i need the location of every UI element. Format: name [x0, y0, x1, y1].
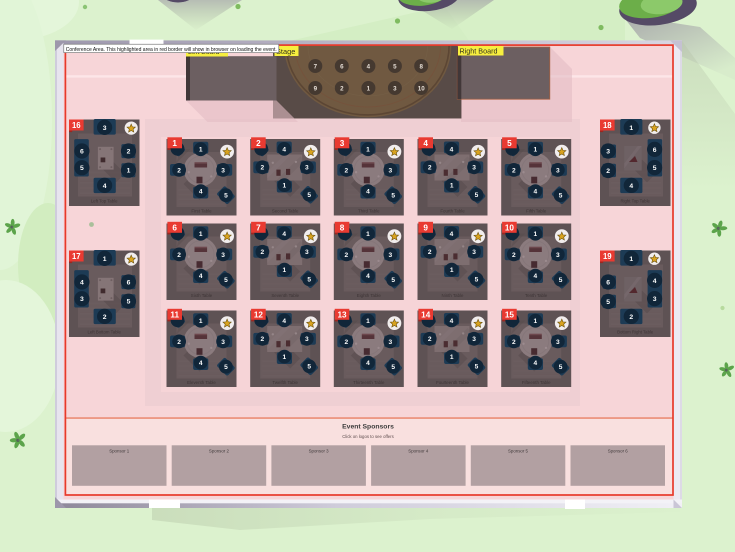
- svg-text:13: 13: [337, 310, 347, 319]
- svg-text:2: 2: [127, 149, 131, 156]
- svg-text:5: 5: [475, 192, 479, 199]
- svg-text:5: 5: [653, 165, 657, 172]
- svg-text:3: 3: [653, 296, 657, 303]
- svg-text:19: 19: [603, 252, 612, 261]
- svg-text:4: 4: [80, 280, 84, 287]
- svg-text:1: 1: [534, 318, 538, 325]
- svg-text:6: 6: [80, 149, 84, 156]
- svg-text:3: 3: [556, 339, 560, 346]
- svg-text:1: 1: [199, 147, 203, 154]
- svg-text:8: 8: [419, 63, 423, 70]
- svg-text:Conference Area. This highligh: Conference Area. This highlighted area i…: [66, 47, 277, 53]
- svg-text:Right Top Table: Right Top Table: [620, 198, 650, 203]
- svg-text:4: 4: [103, 183, 107, 190]
- svg-text:2: 2: [512, 339, 516, 346]
- svg-text:4: 4: [367, 63, 371, 70]
- svg-text:2: 2: [345, 339, 349, 346]
- svg-text:1: 1: [283, 354, 287, 361]
- svg-text:4: 4: [366, 273, 370, 280]
- svg-text:5: 5: [80, 165, 84, 172]
- svg-text:9: 9: [314, 85, 318, 92]
- svg-text:4: 4: [199, 273, 203, 280]
- svg-text:10: 10: [505, 223, 515, 232]
- svg-text:1: 1: [199, 318, 203, 325]
- svg-text:2: 2: [103, 314, 107, 321]
- svg-text:1: 1: [534, 231, 538, 238]
- svg-text:2: 2: [261, 165, 265, 172]
- svg-text:Fourteenth Table: Fourteenth Table: [436, 380, 469, 385]
- svg-text:1: 1: [366, 147, 370, 154]
- svg-text:3: 3: [393, 85, 397, 92]
- svg-text:3: 3: [305, 249, 309, 256]
- svg-text:3: 3: [221, 167, 225, 174]
- svg-text:16: 16: [72, 121, 81, 130]
- svg-text:Eighth Table: Eighth Table: [357, 293, 382, 298]
- svg-text:5: 5: [391, 193, 395, 200]
- svg-text:14: 14: [421, 310, 431, 319]
- svg-text:5: 5: [307, 364, 311, 371]
- svg-text:5: 5: [475, 277, 479, 284]
- svg-text:1: 1: [629, 125, 633, 132]
- svg-text:Fifteenth Table: Fifteenth Table: [522, 380, 551, 385]
- svg-text:2: 2: [345, 252, 349, 259]
- svg-text:4: 4: [534, 189, 538, 196]
- svg-text:5: 5: [606, 299, 610, 306]
- svg-text:Right Board: Right Board: [460, 46, 498, 55]
- svg-text:Sponsor 3: Sponsor 3: [309, 448, 330, 453]
- svg-text:2: 2: [340, 85, 344, 92]
- svg-text:11: 11: [170, 310, 179, 319]
- svg-text:6: 6: [606, 280, 610, 287]
- svg-text:1: 1: [199, 231, 203, 238]
- svg-text:17: 17: [72, 252, 81, 261]
- svg-text:5: 5: [224, 277, 228, 284]
- svg-text:2: 2: [428, 165, 432, 172]
- svg-text:1: 1: [366, 318, 370, 325]
- svg-text:5: 5: [391, 364, 395, 371]
- svg-text:2: 2: [428, 336, 432, 343]
- svg-text:Ninth Table: Ninth Table: [442, 293, 464, 298]
- svg-text:2: 2: [256, 139, 261, 148]
- svg-text:2: 2: [177, 339, 181, 346]
- svg-text:2: 2: [261, 336, 265, 343]
- svg-text:5: 5: [559, 364, 563, 371]
- svg-text:Sponsor 5: Sponsor 5: [508, 448, 529, 453]
- svg-text:Click on logos to see offers: Click on logos to see offers: [342, 434, 394, 439]
- svg-text:Twelfth Table: Twelfth Table: [272, 380, 298, 385]
- svg-text:2: 2: [345, 167, 349, 174]
- svg-text:4: 4: [629, 183, 633, 190]
- svg-text:2: 2: [177, 167, 181, 174]
- svg-text:15: 15: [505, 310, 515, 319]
- svg-text:4: 4: [282, 318, 286, 325]
- svg-text:3: 3: [556, 167, 560, 174]
- svg-text:4: 4: [450, 231, 454, 238]
- svg-text:5: 5: [224, 193, 228, 200]
- svg-text:Sponsor 2: Sponsor 2: [209, 448, 230, 453]
- svg-text:5: 5: [559, 193, 563, 200]
- svg-text:2: 2: [512, 252, 516, 259]
- svg-text:2: 2: [261, 249, 265, 256]
- svg-text:3: 3: [103, 125, 107, 132]
- svg-text:Left Bottom Table: Left Bottom Table: [88, 329, 122, 334]
- svg-text:Second Table: Second Table: [272, 209, 299, 214]
- svg-text:2: 2: [512, 167, 516, 174]
- svg-text:Fifth Table: Fifth Table: [526, 209, 547, 214]
- svg-text:3: 3: [221, 339, 225, 346]
- svg-text:1: 1: [366, 231, 370, 238]
- svg-text:6: 6: [127, 280, 131, 287]
- svg-text:3: 3: [606, 149, 610, 156]
- svg-text:1: 1: [172, 139, 177, 148]
- svg-text:5: 5: [559, 277, 563, 284]
- svg-text:1: 1: [127, 168, 131, 175]
- svg-text:18: 18: [603, 121, 612, 130]
- svg-text:5: 5: [391, 277, 395, 284]
- svg-text:Event Sponsors: Event Sponsors: [342, 424, 394, 431]
- svg-text:5: 5: [307, 192, 311, 199]
- svg-text:6: 6: [172, 223, 177, 232]
- svg-text:1: 1: [367, 85, 371, 92]
- svg-text:3: 3: [389, 339, 393, 346]
- svg-text:9: 9: [423, 223, 428, 232]
- svg-text:5: 5: [507, 139, 512, 148]
- svg-text:3: 3: [221, 252, 225, 259]
- svg-text:Tenth Table: Tenth Table: [525, 293, 548, 298]
- svg-text:1: 1: [450, 354, 454, 361]
- svg-text:3: 3: [472, 249, 476, 256]
- svg-text:3: 3: [389, 252, 393, 259]
- svg-text:4: 4: [450, 318, 454, 325]
- svg-text:6: 6: [340, 63, 344, 70]
- svg-text:1: 1: [534, 147, 538, 154]
- svg-text:5: 5: [224, 364, 228, 371]
- svg-text:4: 4: [423, 139, 428, 148]
- svg-text:4: 4: [366, 360, 370, 367]
- svg-text:6: 6: [653, 147, 657, 154]
- svg-text:4: 4: [199, 189, 203, 196]
- svg-text:1: 1: [450, 183, 454, 190]
- svg-text:4: 4: [199, 360, 203, 367]
- svg-text:3: 3: [472, 165, 476, 172]
- svg-text:1: 1: [629, 256, 633, 263]
- svg-text:4: 4: [534, 273, 538, 280]
- svg-text:4: 4: [534, 360, 538, 367]
- svg-text:Eleventh Table: Eleventh Table: [187, 380, 216, 385]
- svg-text:5: 5: [475, 364, 479, 371]
- svg-text:2: 2: [177, 252, 181, 259]
- svg-text:3: 3: [472, 336, 476, 343]
- svg-text:5: 5: [127, 299, 131, 306]
- svg-text:Third Table: Third Table: [358, 209, 380, 214]
- svg-text:1: 1: [283, 183, 287, 190]
- svg-text:Sponsor 4: Sponsor 4: [408, 448, 429, 453]
- svg-text:Sponsor 1: Sponsor 1: [109, 448, 130, 453]
- svg-text:Seventh Table: Seventh Table: [271, 293, 299, 298]
- svg-text:10: 10: [418, 85, 425, 92]
- svg-text:5: 5: [393, 63, 397, 70]
- svg-text:Bottom Right Table: Bottom Right Table: [617, 329, 654, 334]
- svg-text:1: 1: [450, 267, 454, 274]
- svg-text:4: 4: [366, 189, 370, 196]
- svg-text:7: 7: [256, 223, 261, 232]
- svg-text:3: 3: [556, 252, 560, 259]
- svg-text:3: 3: [80, 296, 84, 303]
- svg-text:Left Top Table: Left Top Table: [91, 198, 118, 203]
- svg-text:3: 3: [305, 336, 309, 343]
- svg-text:5: 5: [307, 277, 311, 284]
- svg-text:4: 4: [282, 231, 286, 238]
- svg-text:2: 2: [606, 168, 610, 175]
- svg-text:Sponsor 6: Sponsor 6: [608, 448, 629, 453]
- svg-text:1: 1: [283, 267, 287, 274]
- svg-text:1: 1: [103, 256, 107, 263]
- svg-text:4: 4: [653, 278, 657, 285]
- svg-text:7: 7: [314, 63, 318, 70]
- svg-text:8: 8: [340, 223, 345, 232]
- svg-text:2: 2: [428, 249, 432, 256]
- svg-text:3: 3: [305, 165, 309, 172]
- svg-text:Fourth Table: Fourth Table: [440, 209, 465, 214]
- svg-text:Thirteenth Table: Thirteenth Table: [353, 380, 385, 385]
- svg-text:4: 4: [282, 146, 286, 153]
- svg-text:3: 3: [389, 167, 393, 174]
- svg-text:12: 12: [254, 310, 264, 319]
- svg-text:4: 4: [450, 146, 454, 153]
- svg-text:2: 2: [629, 314, 633, 321]
- svg-text:Sixth Table: Sixth Table: [191, 293, 213, 298]
- svg-text:3: 3: [340, 139, 345, 148]
- svg-text:First Table: First Table: [191, 209, 212, 214]
